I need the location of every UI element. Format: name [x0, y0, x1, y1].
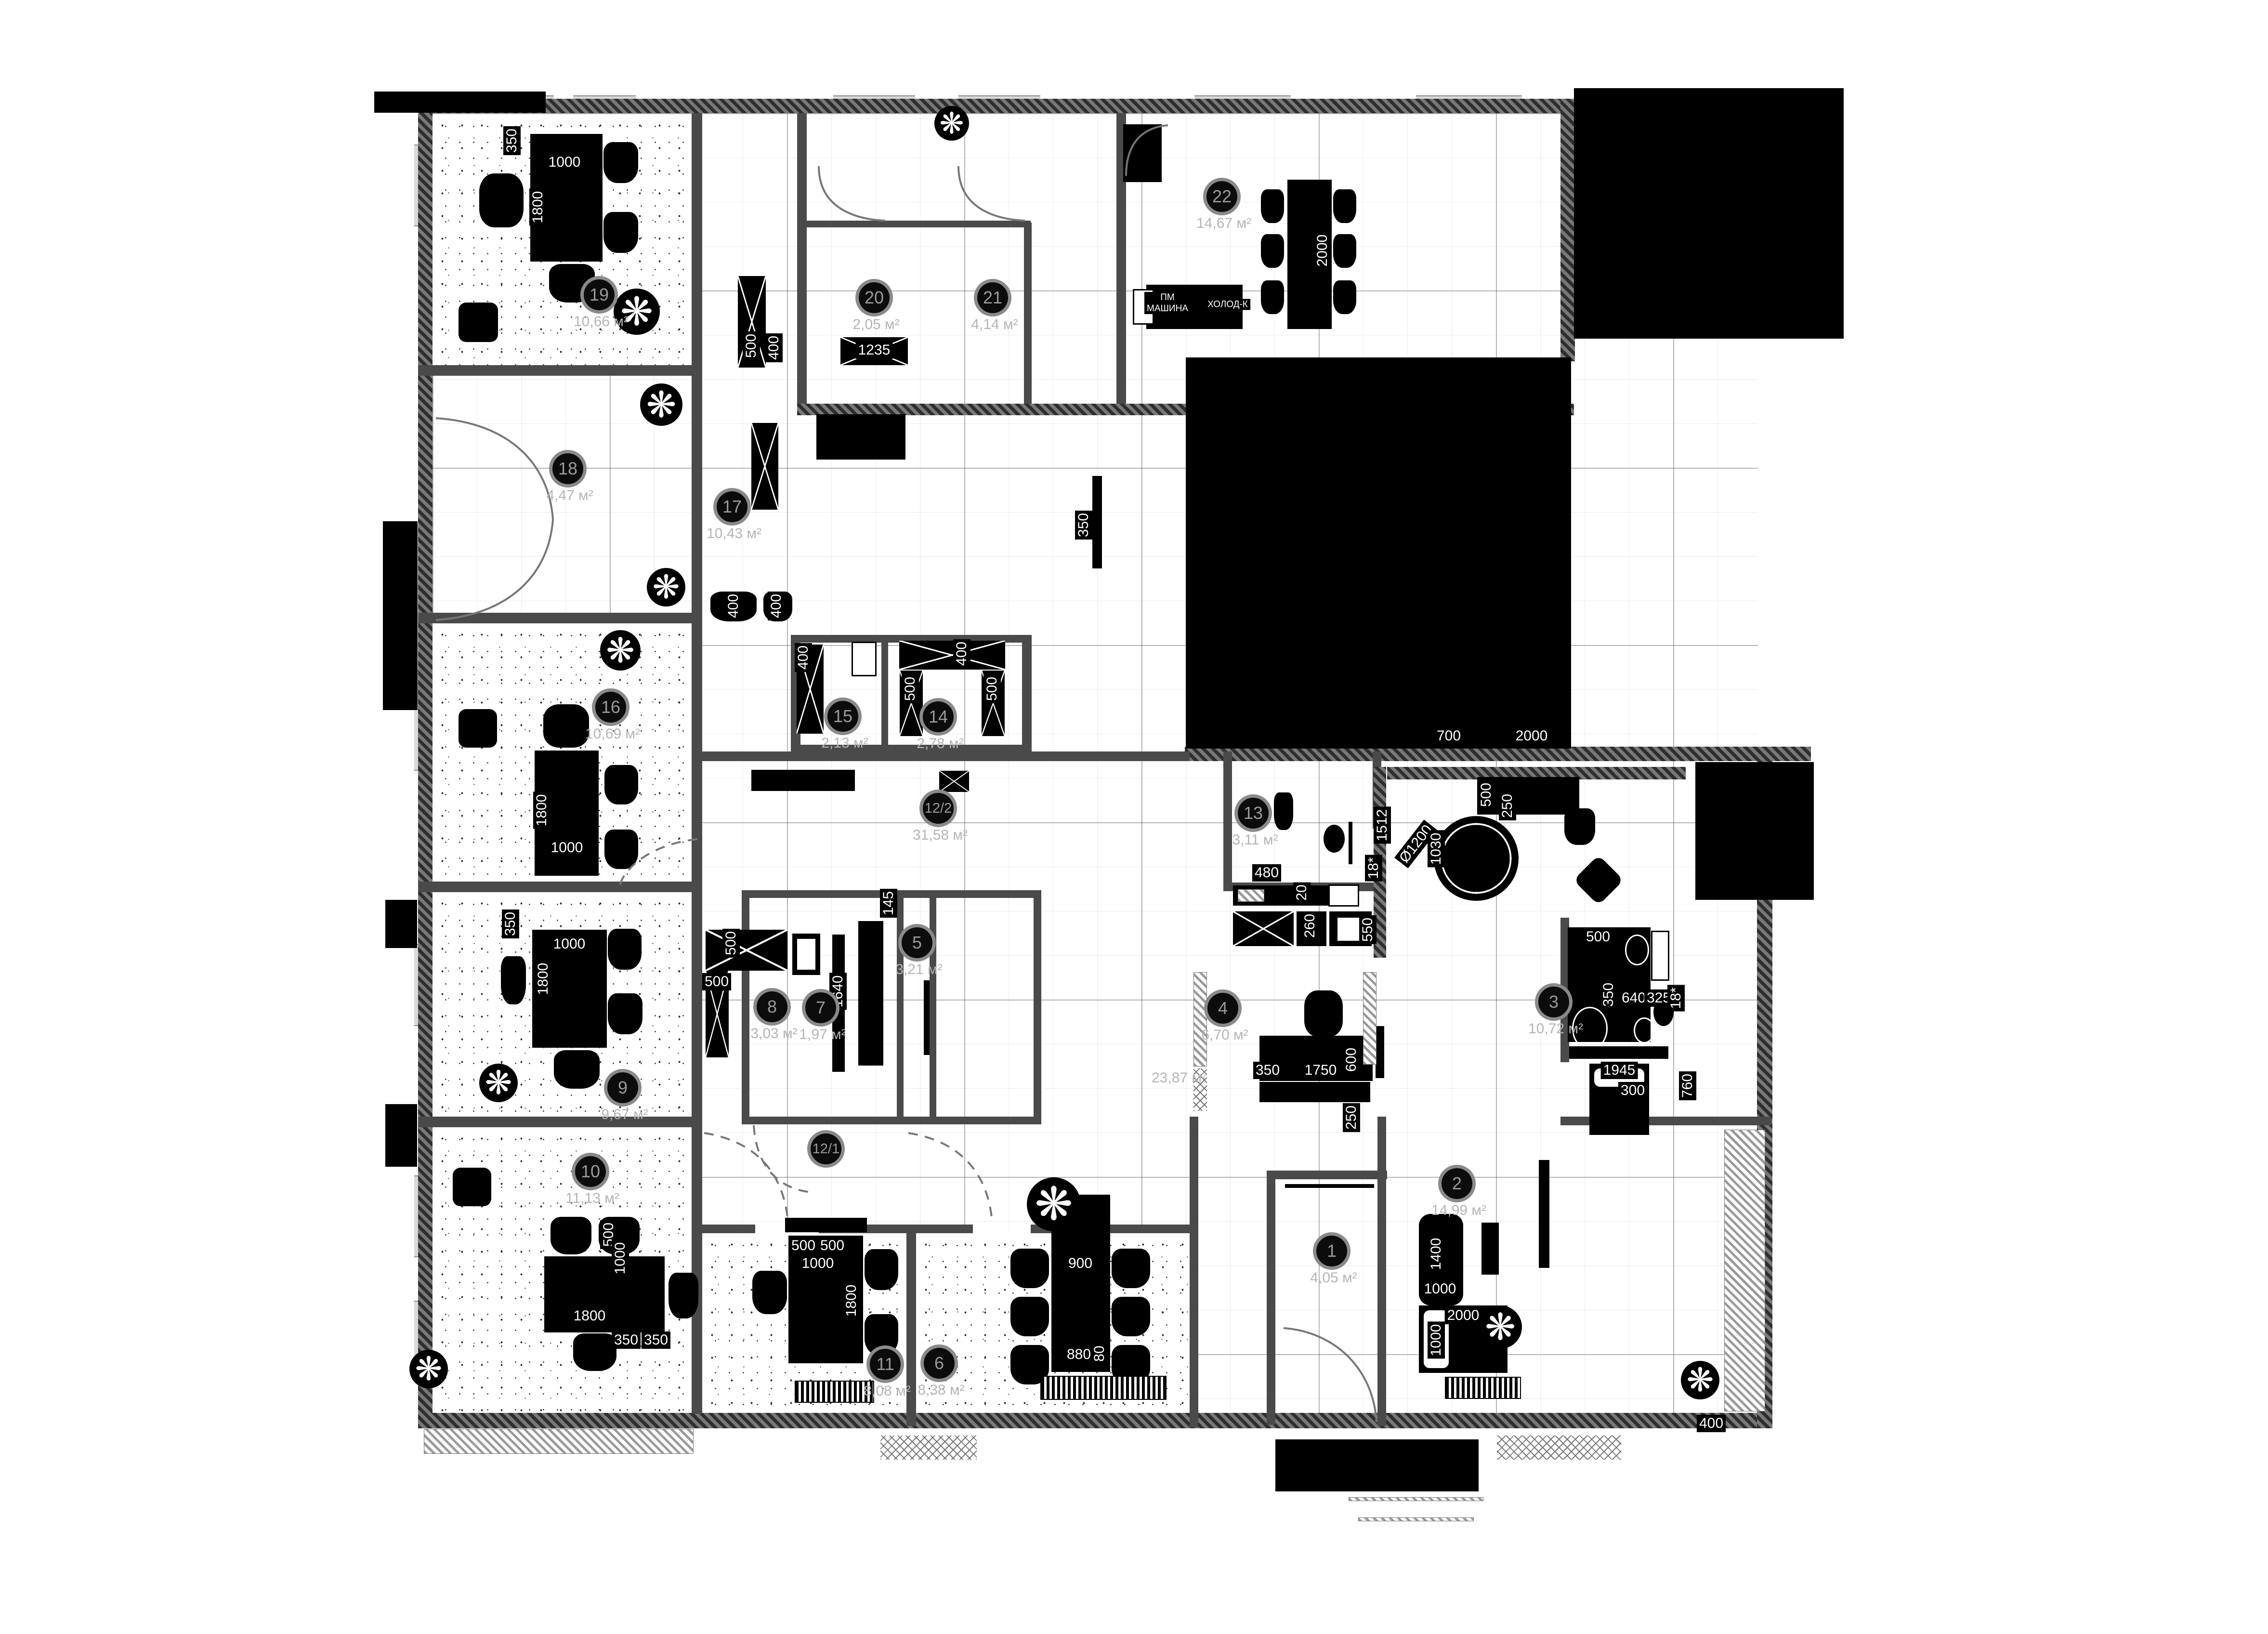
room-area-8: 3,03 м² — [750, 1026, 797, 1042]
room-badge-17: 17 — [713, 488, 751, 526]
dim-label: 400 — [1697, 1415, 1726, 1432]
dim-label: 1000 — [612, 1240, 629, 1277]
dim-label: 500 — [902, 674, 919, 703]
dim-label: 250 — [1499, 791, 1516, 820]
dim-label: 400 — [795, 643, 812, 672]
room-badge-20: 20 — [855, 279, 893, 316]
dim-label: 1945 — [1601, 1062, 1638, 1079]
room-badge-5: 5 — [898, 924, 936, 962]
dim-label: 1800 — [571, 1307, 608, 1325]
plant-icon: ❋ — [600, 630, 641, 671]
room-area-22: 14,67 м² — [1196, 215, 1251, 232]
dim-label: 1000 — [546, 154, 583, 171]
dim-label: 1512 — [1374, 807, 1391, 844]
dim-label: 350 — [1253, 1062, 1282, 1079]
room-area-10: 11,13 м² — [565, 1190, 619, 1207]
plant-icon: ❋ — [1027, 1177, 1081, 1231]
dim-label: 1000 — [551, 936, 588, 953]
door-arc — [819, 166, 885, 221]
dim-label: 1000 — [1428, 1322, 1445, 1359]
dim-label: 2000 — [1314, 232, 1331, 269]
dim-label: 480 — [1252, 864, 1281, 882]
room-badge-12-1: 12/1 — [807, 1130, 845, 1168]
dim-label: 400 — [953, 639, 970, 668]
dim-label: 1800 — [535, 961, 552, 998]
dim-label: 350 — [1075, 511, 1092, 540]
room-badge-19: 19 — [580, 276, 618, 314]
room-badge-4: 4 — [1204, 989, 1242, 1027]
room-badge-9: 9 — [604, 1069, 642, 1107]
dim-label: 1030 — [1428, 830, 1445, 868]
door-arc — [754, 1125, 812, 1192]
plant-icon: ❋ — [1479, 1305, 1522, 1349]
room-badge-3: 3 — [1535, 983, 1573, 1021]
dim-label: 880 — [1064, 1346, 1093, 1363]
dim-label: ПМ МАШИНА — [1144, 292, 1191, 314]
plant-icon: ❋ — [1681, 1361, 1719, 1399]
room-area-17: 10,43 м² — [707, 526, 761, 542]
dim-label: 350 — [612, 1331, 641, 1349]
dim-label: 350 — [503, 126, 521, 155]
plant-icon: ❋ — [934, 106, 969, 141]
dim-label: 250 — [1343, 1103, 1360, 1132]
room-badge-16: 16 — [592, 688, 629, 726]
dim-label: 18* — [1667, 985, 1685, 1011]
dim-label: 1800 — [533, 792, 551, 829]
plant-icon: ❋ — [647, 568, 685, 606]
room-area-15: 2,13 м² — [821, 735, 868, 751]
dim-label: 350 — [642, 1331, 670, 1349]
plant-icon: ❋ — [640, 383, 682, 426]
room-area-9: 9,67 м² — [601, 1107, 648, 1123]
dim-label: 900 — [1066, 1255, 1095, 1272]
room-area-21: 4,14 м² — [971, 316, 1018, 333]
room-badge-8: 8 — [753, 988, 791, 1026]
room-area-16: 10,69 м² — [585, 726, 640, 742]
dim-label: 600 — [1343, 1045, 1360, 1074]
dim-label: 500 — [722, 929, 740, 958]
door-arcs — [0, 0, 2268, 1634]
room-badge-21: 21 — [974, 279, 1011, 316]
door-arc — [1126, 125, 1168, 176]
dim-label: 500 — [818, 1237, 847, 1254]
room-badge-11: 11 — [866, 1345, 904, 1383]
dim-label: 300 — [1618, 1082, 1647, 1099]
annotation: 23,87 м² — [1152, 1070, 1206, 1086]
dim-label: 700 — [1434, 727, 1463, 745]
room-area-14: 2,78 м² — [917, 736, 963, 752]
room-area-5: 3,21 м² — [895, 962, 942, 978]
room-badge-13: 13 — [1234, 794, 1272, 832]
room-area-2: 14,99 м² — [1431, 1202, 1486, 1219]
dim-label: 500 — [983, 674, 1001, 703]
room-badge-14: 14 — [919, 698, 957, 736]
dim-label: 1400 — [1428, 1236, 1445, 1273]
dim-label: 1750 — [1302, 1062, 1339, 1079]
dim-label: 550 — [1359, 915, 1377, 944]
room-badge-12-2: 12/2 — [919, 790, 957, 827]
dim-label: 18* — [1365, 855, 1382, 881]
room-badge-2: 2 — [1438, 1165, 1476, 1202]
dim-label: 2000 — [1445, 1307, 1482, 1324]
dim-label: 1235 — [856, 342, 893, 359]
room-area-3: 10,72 м² — [1528, 1021, 1583, 1037]
door-arc — [958, 166, 1025, 221]
dim-label: 1000 — [1422, 1280, 1459, 1298]
room-badge-6: 6 — [920, 1344, 958, 1382]
room-area-18: 4,47 м² — [546, 488, 593, 504]
dim-label: 145 — [880, 889, 897, 918]
dim-label: 1000 — [800, 1255, 837, 1272]
dim-label: 350 — [502, 909, 519, 938]
dim-label: 1800 — [843, 1282, 860, 1319]
dim-label: 500 — [1478, 780, 1495, 809]
dim-label: 400 — [765, 333, 783, 362]
plant-icon: ❋ — [479, 1064, 518, 1102]
room-badge-10: 10 — [572, 1153, 609, 1190]
dim-label: 80 — [1091, 1343, 1108, 1364]
door-arc — [908, 1133, 992, 1223]
door-arc — [1284, 1328, 1377, 1422]
dim-label: 500 — [743, 331, 760, 360]
door-arc — [619, 839, 697, 887]
room-area-12-2: 31,58 м² — [913, 827, 968, 843]
room-area-13: 3,11 м² — [1232, 832, 1278, 848]
plant-icon: ❋ — [409, 1350, 448, 1388]
dim-label: ХОЛОД-К — [1205, 299, 1250, 310]
room-badge-22: 22 — [1203, 178, 1241, 215]
dim-label: 2000 — [1513, 727, 1550, 745]
room-badge-15: 15 — [824, 698, 862, 735]
dim-label: 1000 — [549, 839, 586, 857]
room-area-19: 10,66 м² — [574, 314, 629, 330]
room-area-20: 2,05 м² — [852, 316, 899, 333]
room-badge-1: 1 — [1313, 1232, 1350, 1270]
dim-label: 1800 — [529, 189, 547, 226]
room-badge-7: 7 — [802, 989, 839, 1027]
dim-label: 400 — [768, 592, 785, 620]
room-badge-18: 18 — [549, 450, 587, 488]
room-area-11: 8,08 м² — [864, 1383, 910, 1399]
room-area-1: 4,05 м² — [1310, 1270, 1357, 1286]
door-arc — [436, 418, 553, 519]
room-area-4: 6,70 м² — [1201, 1027, 1248, 1043]
room-area-7: 1,97 м² — [799, 1027, 846, 1043]
door-arc — [436, 519, 553, 620]
dim-label: 400 — [725, 592, 742, 620]
dim-label: 350 — [1600, 980, 1617, 1009]
room-area-6: 8,38 м² — [918, 1382, 964, 1398]
floor-plan: ❋❋❋❋❋❋❋❋❋❋3501000180050040012352000ПМ МА… — [0, 0, 2268, 1634]
dim-label: 260 — [1301, 911, 1319, 940]
dim-label: 20 — [1293, 882, 1311, 903]
dim-label: 760 — [1679, 1071, 1696, 1100]
dim-label: 500 — [702, 973, 731, 990]
dim-label: 500 — [789, 1237, 818, 1254]
dim-label: 500 — [1584, 928, 1613, 946]
